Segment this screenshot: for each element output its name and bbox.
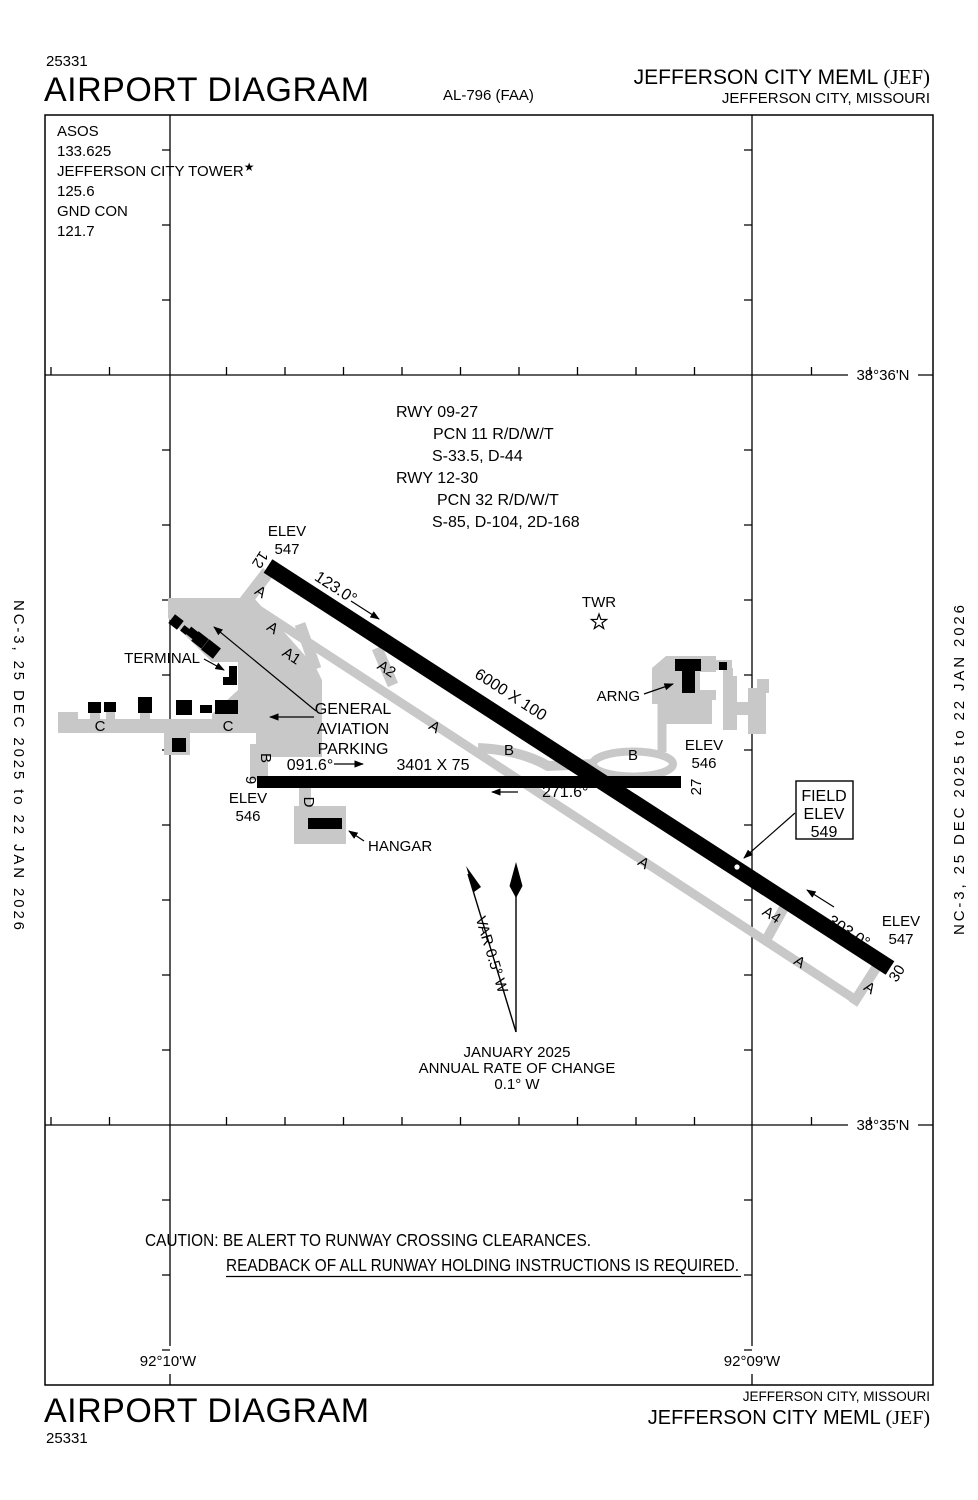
tower-site-label: TWR bbox=[582, 594, 616, 611]
building bbox=[172, 738, 186, 752]
chart-code-top: 25331 bbox=[46, 53, 88, 70]
pavement-shape bbox=[757, 679, 769, 693]
elev-27-label: ELEV bbox=[685, 737, 723, 754]
runway-0927-dimension: 3401 X 75 bbox=[397, 757, 470, 774]
tower-star-icon bbox=[591, 614, 606, 629]
building bbox=[719, 662, 727, 670]
page-title-footer: AIRPORT DIAGRAM bbox=[44, 1392, 370, 1430]
taxiway-b-label: B bbox=[257, 753, 274, 763]
airport-name-header: JEFFERSON CITY MEML (JEF) bbox=[634, 65, 930, 89]
lon-label-right: 92°09'W bbox=[724, 1353, 781, 1370]
variation-label: VAR 0.5° W bbox=[472, 914, 512, 995]
airport-name-footer: JEFFERSON CITY MEML (JEF) bbox=[648, 1407, 930, 1429]
lat-bottom-ticks bbox=[51, 1117, 870, 1125]
tower-label-text: JEFFERSON CITY TOWER bbox=[57, 163, 244, 180]
procedure-id: AL-796 (FAA) bbox=[443, 87, 534, 104]
airport-code-text: (JEF) bbox=[886, 1407, 930, 1429]
caution-line1: CAUTION: BE ALERT TO RUNWAY CROSSING CLE… bbox=[145, 1230, 591, 1250]
elev-9-label: ELEV bbox=[229, 790, 267, 807]
header: 25331 AIRPORT DIAGRAM AL-796 (FAA) JEFFE… bbox=[44, 53, 930, 109]
variation-arrows: VAR 0.5° W JANUARY 2025 ANNUAL RATE OF C… bbox=[419, 862, 616, 1093]
airport-diagram-chart: 25331 AIRPORT DIAGRAM AL-796 (FAA) JEFFE… bbox=[0, 0, 978, 1500]
mag-note-line2: ANNUAL RATE OF CHANGE bbox=[419, 1060, 616, 1077]
airport-name-text: JEFFERSON CITY MEML bbox=[634, 66, 884, 89]
arng-label: ARNG bbox=[597, 688, 640, 705]
rwy-0927-pcn: PCN 11 R/D/W/T bbox=[433, 426, 554, 443]
taxiway-b-label: B bbox=[504, 742, 514, 759]
building bbox=[200, 705, 212, 713]
hangar-label: HANGAR bbox=[368, 838, 432, 855]
field-elev-line3: 549 bbox=[811, 824, 838, 841]
arng-building bbox=[682, 671, 695, 693]
runway-9-heading: 091.6° bbox=[287, 757, 333, 774]
caution-note: CAUTION: BE ALERT TO RUNWAY CROSSING CLE… bbox=[145, 1230, 741, 1277]
lat-top-ticks bbox=[51, 367, 870, 375]
tower-label: JEFFERSON CITY TOWER★ bbox=[57, 160, 254, 180]
elev-30-value: 547 bbox=[888, 931, 913, 948]
field-elev-line2: ELEV bbox=[804, 806, 845, 823]
lat-label-bottom: 38°35'N bbox=[856, 1117, 909, 1134]
pavement-shape bbox=[723, 676, 737, 730]
runway-27-number: 27 bbox=[688, 779, 705, 796]
elev-12-value: 547 bbox=[274, 541, 299, 558]
taxiway-b-label: B bbox=[628, 747, 638, 764]
rwy-1230-pcn: PCN 32 R/D/W/T bbox=[437, 492, 559, 509]
gnd-con-freq: 121.7 bbox=[57, 223, 95, 240]
chart-code-bottom: 25331 bbox=[46, 1430, 88, 1447]
tower-freq: 125.6 bbox=[57, 183, 95, 200]
elev-9-value: 546 bbox=[235, 808, 260, 825]
rwy-0927-strength: S-33.5, D-44 bbox=[432, 448, 523, 465]
pavement-shape bbox=[58, 719, 216, 733]
mag-note-line1: JANUARY 2025 bbox=[463, 1044, 570, 1061]
building bbox=[215, 700, 238, 714]
runway-30-heading-arrow bbox=[807, 890, 834, 907]
mag-note-line3: 0.1° W bbox=[494, 1076, 540, 1093]
pavement-shape bbox=[106, 711, 115, 721]
page-title: AIRPORT DIAGRAM bbox=[44, 71, 370, 109]
asos-freq: 133.625 bbox=[57, 143, 111, 160]
lon-label-left: 92°10'W bbox=[140, 1353, 197, 1370]
gnd-con-label: GND CON bbox=[57, 203, 128, 220]
elev-27-value: 546 bbox=[691, 755, 716, 772]
comm-box: ASOS 133.625 JEFFERSON CITY TOWER★ 125.6… bbox=[57, 123, 254, 240]
field-elevation-box: FIELD ELEV 549 bbox=[744, 781, 853, 858]
ga-parking-line3: PARKING bbox=[318, 741, 389, 758]
magnetic-north-arrowhead-icon bbox=[466, 866, 481, 892]
rwy-1230-label: RWY 12-30 bbox=[396, 470, 478, 487]
ga-parking-line2: AVIATION bbox=[317, 721, 389, 738]
field-elev-line1: FIELD bbox=[801, 788, 846, 805]
runway-data-block: RWY 09-27 PCN 11 R/D/W/T S-33.5, D-44 RW… bbox=[396, 404, 580, 531]
runway-9-number: 9 bbox=[242, 776, 259, 784]
building bbox=[88, 702, 101, 713]
true-north-arrowhead-icon bbox=[510, 862, 523, 898]
arng-building bbox=[675, 659, 701, 671]
lat-label-top: 38°36'N bbox=[856, 367, 909, 384]
hangar-arrow bbox=[349, 831, 364, 841]
airport-diagram-page: 25331 AIRPORT DIAGRAM AL-796 (FAA) JEFFE… bbox=[0, 0, 978, 1500]
building bbox=[176, 700, 192, 715]
rwy-1230-strength: S-85, D-104, 2D-168 bbox=[432, 514, 580, 531]
taxiway-c-label: C bbox=[223, 718, 234, 735]
pavement-shape bbox=[735, 702, 750, 715]
building bbox=[104, 702, 116, 712]
caution-line2: READBACK OF ALL RUNWAY HOLDING INSTRUCTI… bbox=[226, 1255, 739, 1275]
airport-name-text: JEFFERSON CITY MEML bbox=[648, 1407, 886, 1429]
elev-12-label: ELEV bbox=[268, 523, 306, 540]
rwy-0927-label: RWY 09-27 bbox=[396, 404, 478, 421]
terminal-label: TERMINAL bbox=[124, 650, 200, 667]
pavement-shape bbox=[58, 712, 78, 733]
effective-date-right: NC-3, 25 DEC 2025 to 22 JAN 2026 bbox=[951, 605, 968, 935]
terminal-building bbox=[223, 677, 229, 685]
elev-30-label: ELEV bbox=[882, 913, 920, 930]
ga-parking-line1: GENERAL bbox=[315, 701, 392, 718]
building bbox=[138, 697, 152, 713]
pavement-shape bbox=[748, 688, 766, 734]
runway-27-heading: 271.6° bbox=[542, 784, 588, 801]
asos-label: ASOS bbox=[57, 123, 99, 140]
runways bbox=[257, 566, 890, 968]
field-elevation-point bbox=[734, 864, 740, 870]
city-footer: JEFFERSON CITY, MISSOURI bbox=[743, 1389, 930, 1404]
airport-code-text: (JEF) bbox=[883, 65, 930, 89]
effective-date-left: NC-3, 25 DEC 2025 to 22 JAN 2026 bbox=[10, 600, 27, 930]
terminal-building bbox=[229, 666, 237, 685]
taxiway-c-label: C bbox=[95, 718, 106, 735]
footer: JEFFERSON CITY, MISSOURI JEFFERSON CITY … bbox=[44, 1389, 930, 1447]
taxiway-d-label: D bbox=[300, 797, 317, 808]
tower-star-icon: ★ bbox=[244, 160, 255, 174]
hangar-building bbox=[308, 818, 342, 829]
runway-12-30 bbox=[268, 566, 890, 968]
lon-right-ticks bbox=[744, 150, 752, 1350]
city-header: JEFFERSON CITY, MISSOURI bbox=[722, 90, 930, 107]
